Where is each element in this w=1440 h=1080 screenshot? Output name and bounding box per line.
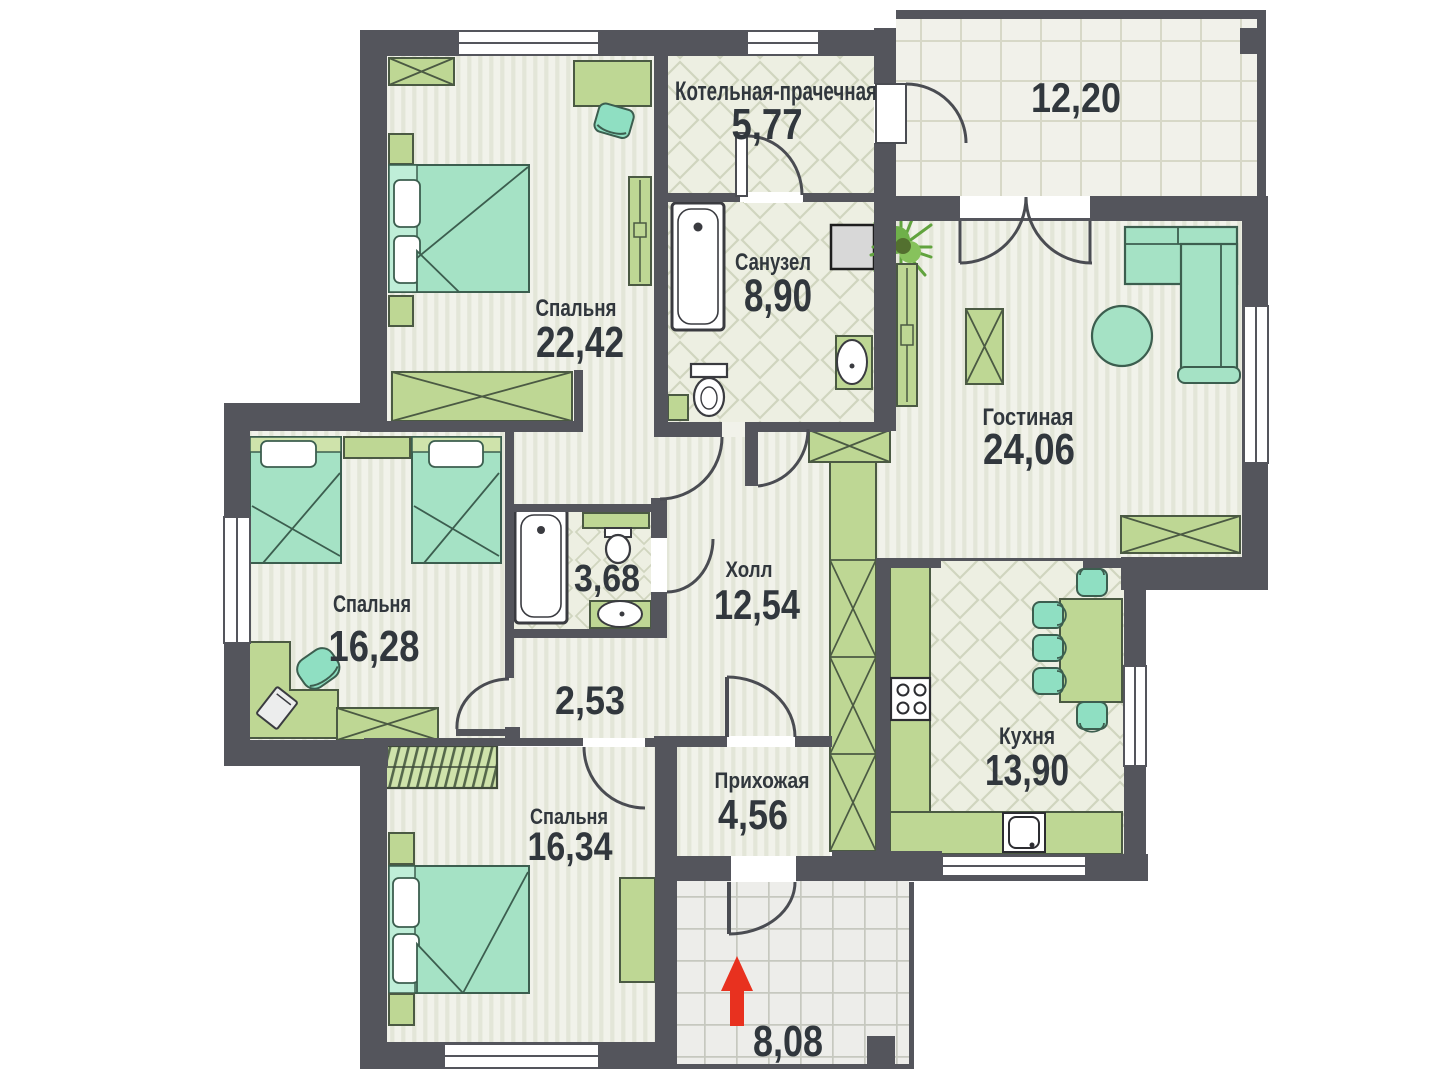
svg-text:2,53: 2,53 <box>555 679 625 723</box>
svg-text:5,77: 5,77 <box>732 100 803 149</box>
svg-text:4,56: 4,56 <box>718 791 788 838</box>
svg-text:22,42: 22,42 <box>536 318 624 367</box>
svg-text:Прихожая: Прихожая <box>715 768 810 793</box>
svg-text:Спальня: Спальня <box>333 591 411 618</box>
svg-text:16,34: 16,34 <box>528 825 614 869</box>
svg-text:16,28: 16,28 <box>329 622 420 671</box>
svg-text:13,90: 13,90 <box>985 746 1069 795</box>
svg-text:8,90: 8,90 <box>744 270 812 321</box>
svg-text:8,08: 8,08 <box>753 1017 823 1066</box>
svg-text:24,06: 24,06 <box>983 425 1075 474</box>
svg-text:12,54: 12,54 <box>714 581 801 628</box>
svg-text:3,68: 3,68 <box>574 558 640 600</box>
svg-text:12,20: 12,20 <box>1031 74 1121 121</box>
svg-text:Холл: Холл <box>726 557 773 582</box>
